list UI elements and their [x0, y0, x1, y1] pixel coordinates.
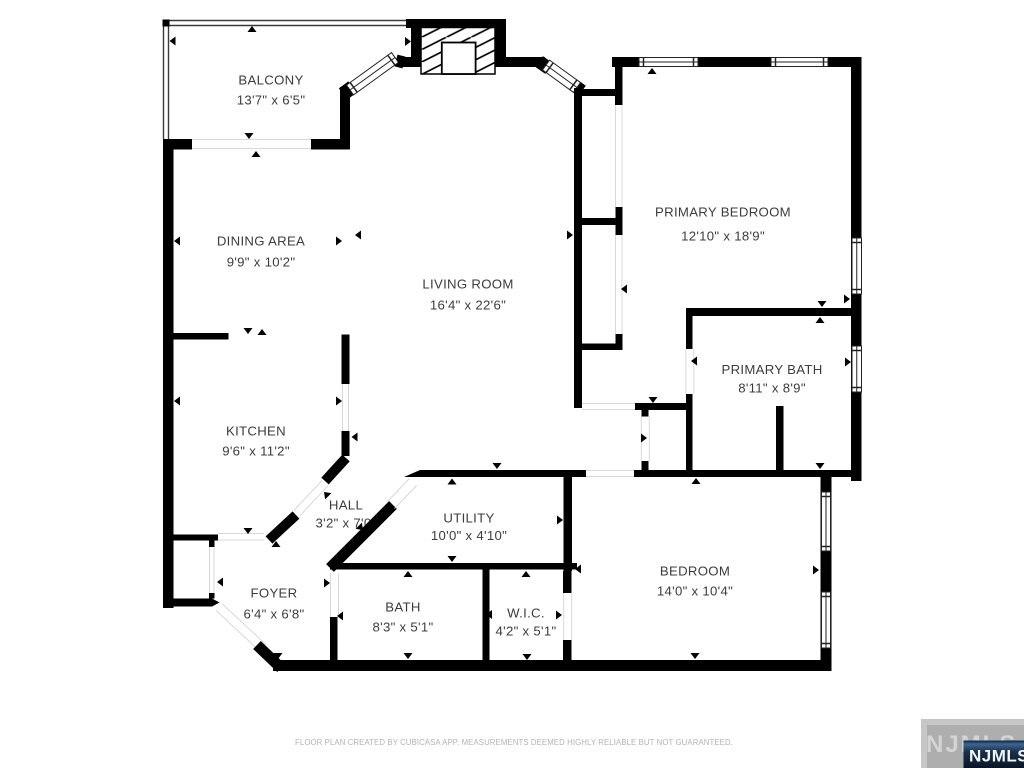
svg-text:HALL: HALL	[329, 497, 363, 512]
svg-text:FLOOR PLAN CREATED BY CUBICASA: FLOOR PLAN CREATED BY CUBICASA APP. MEAS…	[295, 738, 733, 747]
svg-text:BATH: BATH	[385, 599, 420, 614]
svg-text:12'10" x 18'9": 12'10" x 18'9"	[681, 228, 765, 243]
svg-text:LIVING ROOM: LIVING ROOM	[422, 276, 513, 291]
svg-text:KITCHEN: KITCHEN	[226, 423, 286, 438]
svg-text:PRIMARY BEDROOM: PRIMARY BEDROOM	[655, 204, 791, 219]
svg-text:10'0" x 4'10": 10'0" x 4'10"	[431, 528, 507, 543]
svg-text:8'3" x 5'1": 8'3" x 5'1"	[373, 619, 434, 634]
svg-text:NJMLS: NJMLS	[969, 747, 1024, 766]
svg-text:13'7" x 6'5": 13'7" x 6'5"	[237, 92, 306, 107]
svg-text:16'4" x 22'6": 16'4" x 22'6"	[430, 297, 506, 312]
svg-text:6'4" x 6'8": 6'4" x 6'8"	[244, 606, 305, 621]
svg-text:BEDROOM: BEDROOM	[660, 563, 730, 578]
svg-text:BALCONY: BALCONY	[238, 72, 303, 87]
svg-text:9'9" x 10'2": 9'9" x 10'2"	[227, 254, 296, 269]
svg-text:4'2" x 5'1": 4'2" x 5'1"	[496, 623, 557, 638]
svg-text:14'0" x 10'4": 14'0" x 10'4"	[657, 583, 733, 598]
svg-text:8'11" x 8'9": 8'11" x 8'9"	[738, 380, 806, 395]
svg-text:UTILITY: UTILITY	[443, 510, 494, 525]
svg-text:W.I.C.: W.I.C.	[507, 605, 545, 620]
svg-text:9'6" x 11'2": 9'6" x 11'2"	[222, 443, 290, 458]
svg-text:DINING AREA: DINING AREA	[217, 233, 305, 248]
svg-text:PRIMARY BATH: PRIMARY BATH	[721, 362, 822, 377]
svg-text:FOYER: FOYER	[251, 585, 298, 600]
